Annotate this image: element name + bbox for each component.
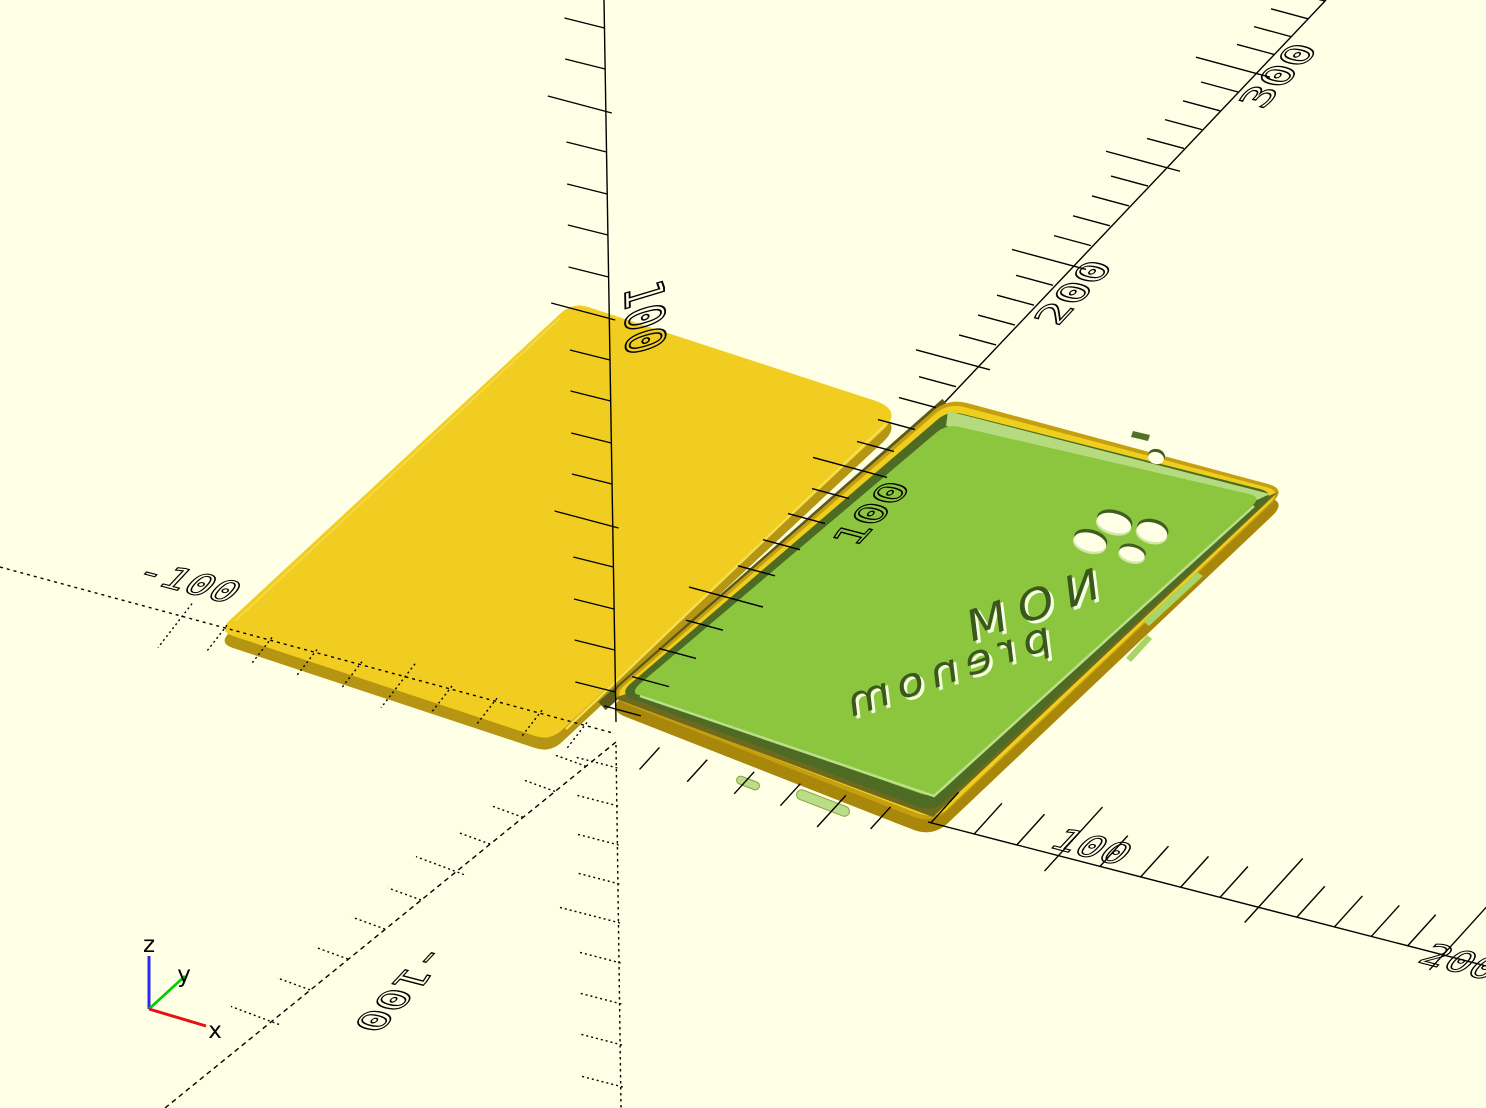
gizmo-z-label: z (143, 932, 155, 958)
openscad-3d-viewport[interactable]: NOM NOM prenom prenom -100 100 200 100 2… (0, 0, 1486, 1108)
gizmo-y-label: y (177, 962, 191, 988)
gizmo-x-label: x (208, 1018, 222, 1044)
